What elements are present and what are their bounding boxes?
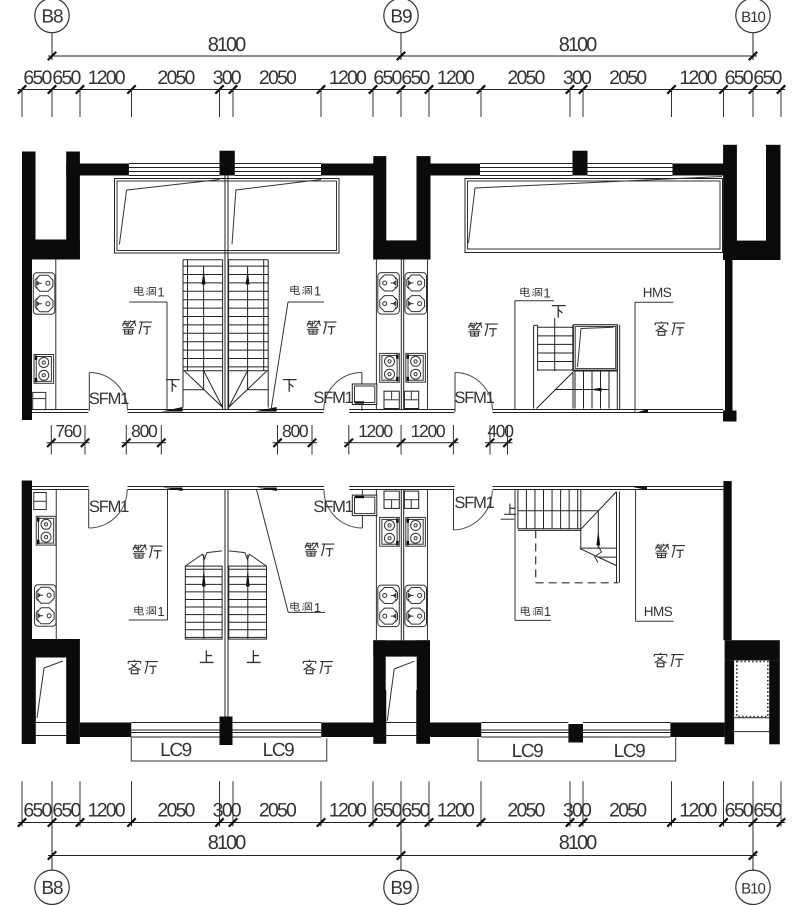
svg-text:8100: 8100 [208, 832, 246, 854]
svg-text:B9: B9 [390, 878, 412, 899]
svg-text:B10: B10 [741, 9, 765, 26]
svg-text:2050: 2050 [609, 800, 647, 822]
svg-text:1: 1 [314, 284, 321, 299]
svg-text:SFM1: SFM1 [89, 390, 129, 408]
svg-text:B9: B9 [390, 7, 412, 28]
svg-text:1200: 1200 [358, 421, 393, 441]
svg-text:SFM1: SFM1 [313, 498, 353, 516]
svg-text:1200: 1200 [679, 800, 717, 822]
svg-text:B10: B10 [741, 881, 765, 898]
svg-text:650: 650 [401, 800, 430, 822]
svg-text:SFM1: SFM1 [89, 498, 129, 516]
svg-text:2050: 2050 [609, 67, 647, 89]
svg-text:1: 1 [543, 285, 550, 300]
svg-text:SFM1: SFM1 [313, 389, 353, 407]
svg-text:2050: 2050 [259, 800, 297, 822]
svg-text:800: 800 [282, 421, 309, 441]
svg-text:650: 650 [725, 800, 754, 822]
svg-text:LC9: LC9 [614, 741, 645, 762]
svg-text:1200: 1200 [88, 800, 126, 822]
svg-text:1200: 1200 [437, 800, 475, 822]
svg-text:650: 650 [753, 800, 782, 822]
svg-text:8100: 8100 [208, 34, 246, 56]
svg-text:SFM1: SFM1 [454, 389, 494, 407]
svg-text:800: 800 [131, 421, 158, 441]
svg-text:2050: 2050 [259, 67, 297, 89]
svg-text:650: 650 [23, 67, 52, 89]
svg-text:B8: B8 [41, 7, 63, 28]
svg-text:1200: 1200 [329, 67, 367, 89]
svg-text:650: 650 [753, 67, 782, 89]
svg-text:HMS: HMS [643, 285, 672, 300]
svg-text:2050: 2050 [157, 67, 195, 89]
svg-text:1: 1 [157, 604, 164, 619]
svg-text:2050: 2050 [507, 800, 545, 822]
svg-text:B8: B8 [41, 878, 63, 899]
svg-text:400: 400 [487, 421, 514, 441]
svg-text:1200: 1200 [679, 67, 717, 89]
svg-text:300: 300 [563, 67, 592, 89]
svg-text:SFM1: SFM1 [454, 494, 494, 512]
svg-text:650: 650 [401, 67, 430, 89]
svg-text:650: 650 [52, 67, 81, 89]
svg-text:LC9: LC9 [160, 740, 191, 761]
svg-text:8100: 8100 [559, 832, 597, 854]
svg-text:8100: 8100 [559, 34, 597, 56]
svg-text:1: 1 [157, 285, 164, 300]
svg-text:1200: 1200 [329, 800, 367, 822]
svg-text:650: 650 [373, 800, 402, 822]
svg-text:2050: 2050 [507, 67, 545, 89]
svg-text:650: 650 [373, 67, 402, 89]
svg-text:300: 300 [213, 800, 242, 822]
svg-text:LC9: LC9 [512, 741, 543, 762]
svg-text:HMS: HMS [644, 604, 673, 619]
svg-text:1200: 1200 [411, 421, 446, 441]
svg-text:1200: 1200 [88, 67, 126, 89]
svg-text:300: 300 [563, 800, 592, 822]
svg-text:1200: 1200 [437, 67, 475, 89]
svg-text:650: 650 [725, 67, 754, 89]
svg-text:2050: 2050 [157, 800, 195, 822]
svg-text:LC9: LC9 [263, 740, 294, 761]
svg-text:650: 650 [23, 800, 52, 822]
svg-text:1: 1 [544, 604, 551, 619]
svg-text:760: 760 [55, 421, 82, 441]
svg-text:300: 300 [213, 67, 242, 89]
svg-text:650: 650 [52, 800, 81, 822]
